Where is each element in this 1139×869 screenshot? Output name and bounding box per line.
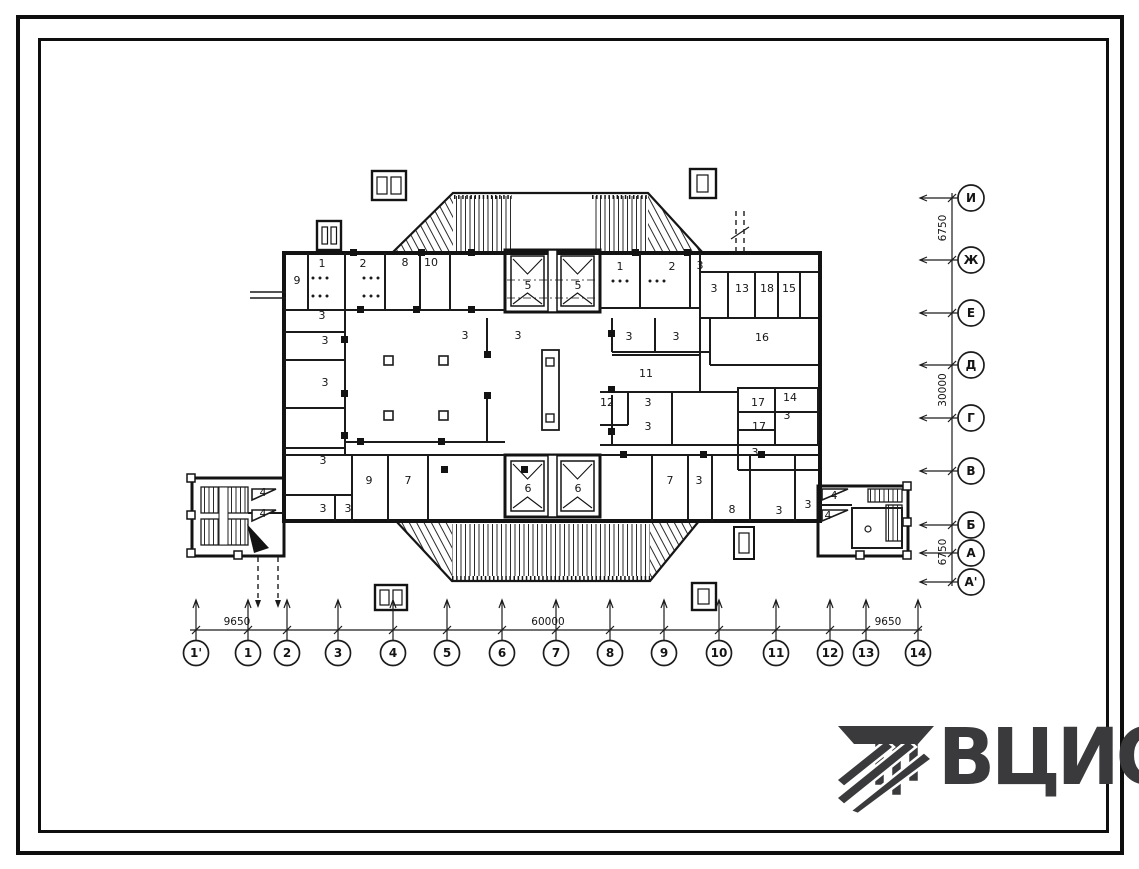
room-number: 3 xyxy=(345,502,352,515)
vcis-logo-text: ВЦИС xyxy=(938,714,1139,802)
axis-marker-label: 3 xyxy=(334,646,342,660)
axis-marker-label: И xyxy=(966,191,976,205)
axis-marker-label: Б xyxy=(966,518,975,532)
room-number: 9 xyxy=(294,274,301,287)
room-number: 14 xyxy=(783,391,797,404)
axis-grid-bottom: 1'12345678910111213149650600009650 xyxy=(184,600,931,666)
room-number: 3 xyxy=(784,409,791,422)
room-number: 3 xyxy=(776,504,783,517)
axis-marker-label: 12 xyxy=(822,646,839,660)
room-number: 4 xyxy=(260,486,267,499)
axis-marker-label: Д xyxy=(966,358,977,372)
axis-marker-label: 11 xyxy=(768,646,785,660)
axis-marker-label: Ж xyxy=(964,253,979,267)
axis-marker-label: 14 xyxy=(910,646,927,660)
room-number: 3 xyxy=(673,330,680,343)
axis-marker-label: 10 xyxy=(711,646,728,660)
room-number: 3 xyxy=(320,502,327,515)
room-number: 5 xyxy=(525,279,532,292)
dimension-label: 6750 xyxy=(937,539,949,566)
room-number: 3 xyxy=(462,329,469,342)
axis-marker-label: 13 xyxy=(858,646,875,660)
room-number: 3 xyxy=(711,282,718,295)
dimension-label: 9650 xyxy=(224,616,251,628)
axis-grid-right: ИЖЕДГВБАА'6750300006750 xyxy=(920,185,984,595)
room-number: 18 xyxy=(760,282,774,295)
room-number: 3 xyxy=(645,396,652,409)
room-number: 13 xyxy=(735,282,749,295)
room-number: 15 xyxy=(782,282,796,295)
room-number: 3 xyxy=(322,376,329,389)
room-number: 5 xyxy=(575,279,582,292)
axis-marker-label: 2 xyxy=(283,646,291,660)
room-number: 1 xyxy=(617,260,624,273)
room-number: 3 xyxy=(626,330,633,343)
axis-marker-label: Е xyxy=(967,306,975,320)
room-number: 3 xyxy=(320,454,327,467)
room-number: 7 xyxy=(405,474,412,487)
room-number: 3 xyxy=(319,309,326,322)
room-number: 17 xyxy=(752,420,766,433)
room-number: 3 xyxy=(515,329,522,342)
axis-marker-label: В xyxy=(966,464,975,478)
dimension-label: 9650 xyxy=(875,616,902,628)
room-number: 3 xyxy=(645,420,652,433)
axis-marker-label: А xyxy=(966,546,976,560)
axis-marker-label: 5 xyxy=(443,646,451,660)
axis-marker-label: 1' xyxy=(190,646,202,660)
axis-marker-label: 4 xyxy=(389,646,397,660)
room-number: 8 xyxy=(402,256,409,269)
dimension-label: 60000 xyxy=(531,616,564,628)
axis-marker-label: 7 xyxy=(552,646,560,660)
axis-marker-label: 1 xyxy=(244,646,252,660)
room-number: 10 xyxy=(424,256,438,269)
room-number: 4 xyxy=(831,489,838,502)
room-number: 16 xyxy=(755,331,769,344)
room-number: 3 xyxy=(752,446,759,459)
room-number: 7 xyxy=(667,474,674,487)
room-number: 11 xyxy=(639,367,653,380)
axis-marker-label: 9 xyxy=(660,646,668,660)
room-number: 6 xyxy=(575,482,582,495)
vcis-logo-icon xyxy=(834,714,938,814)
room-number: 12 xyxy=(600,396,614,409)
room-number: 1 xyxy=(319,257,326,270)
room-number: 2 xyxy=(669,260,676,273)
room-number: 9 xyxy=(366,474,373,487)
axis-marker-label: 8 xyxy=(606,646,614,660)
drawing-sheet: 9128105512331318153333331631112317143173… xyxy=(0,0,1139,869)
room-number: 3 xyxy=(697,259,704,272)
room-number: 4 xyxy=(825,509,832,522)
vcis-logo: ВЦИС xyxy=(834,714,1139,814)
room-number: 4 xyxy=(260,507,267,520)
dimension-label: 6750 xyxy=(937,215,949,242)
room-number: 3 xyxy=(805,498,812,511)
room-number: 6 xyxy=(525,482,532,495)
room-number: 3 xyxy=(322,334,329,347)
room-number: 17 xyxy=(751,396,765,409)
axis-marker-label: А' xyxy=(965,575,978,589)
room-number: 3 xyxy=(696,474,703,487)
dimension-label: 30000 xyxy=(937,373,949,406)
room-number: 8 xyxy=(729,503,736,516)
room-number: 2 xyxy=(360,257,367,270)
axis-marker-label: Г xyxy=(967,411,975,425)
axis-marker-label: 6 xyxy=(498,646,506,660)
